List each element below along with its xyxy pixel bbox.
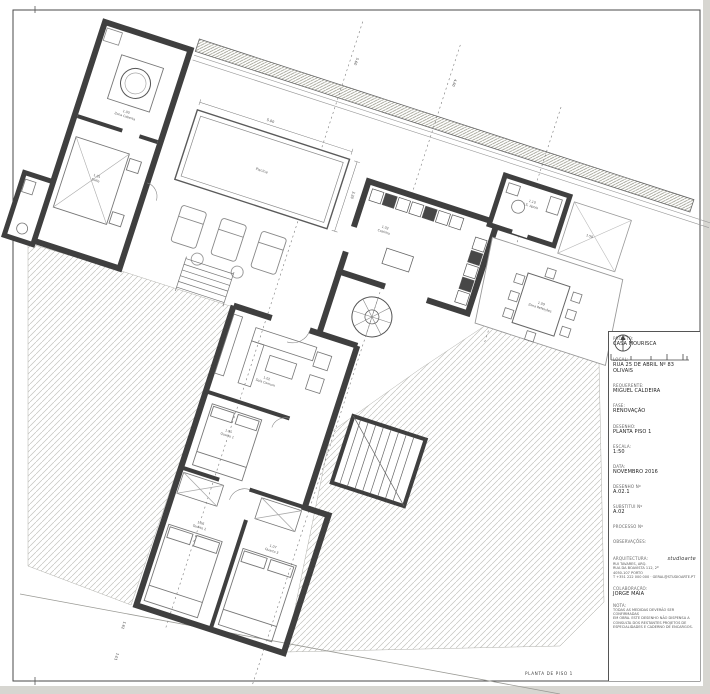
field-substitui: SUBSTITUI Nº A.02 [613, 504, 696, 515]
q3-label: Quarto 3 [264, 547, 279, 555]
outbuilding-bathroom [489, 175, 570, 246]
kitchen-block [334, 180, 497, 317]
nota-line: TODAS AS MEDIDAS DEVERÃO SER CONFIRMADAS [613, 608, 696, 617]
field-arquitectura: ARQUITECTURA: studioarte RUI TAVARES, AR… [613, 556, 696, 580]
q1-label: Quarto 1 [220, 431, 235, 439]
field-data: DATA: NOVEMBRO 2016 [613, 464, 696, 475]
dim-label: 5.00 [266, 118, 275, 124]
dim-label: 4.60 [451, 79, 457, 88]
field-value: NOVEMBRO 2016 [613, 469, 696, 475]
spiral-stair [347, 292, 397, 342]
dim-label: 5.60 [353, 57, 359, 66]
field-label: PROCESSO Nº [613, 524, 696, 529]
field-fase: FASE: RENOVAÇÃO [613, 403, 696, 414]
titleblock-header-graphics [609, 332, 693, 364]
field-colaboracao: COLABORAÇÃO: JORGE MAIA [613, 586, 696, 597]
field-desenho: DESENHO: PLANTA PISO 1 [613, 424, 696, 435]
field-value: OLIVAIS [613, 368, 696, 374]
field-observacoes: OBSERVAÇÕES: [613, 539, 696, 544]
terrain-hatch-right [286, 325, 604, 652]
title-block: PROJETO: CASA MOURISCA LOCAL: RUA 25 DE … [608, 331, 700, 681]
studio-logo: studioarte [667, 556, 696, 562]
field-label: OBSERVAÇÕES: [613, 539, 696, 544]
living-room-furniture [214, 314, 335, 408]
nota-line: EM OBRA. ESTE DESENHO NÃO DISPENSA A [613, 616, 696, 620]
field-nota: NOTA: TODAS AS MEDIDAS DEVERÃO SER CONFI… [613, 603, 696, 630]
field-value: 1:50 [613, 449, 696, 455]
nota-line: ESPECIALIDADES E CADERNO DE ENCARGOS. [613, 625, 696, 629]
bedroom1-bed [192, 404, 261, 481]
dim-label: 1.62 [120, 621, 126, 630]
north-arrow-icon [615, 335, 631, 351]
graphic-scale-bar [611, 354, 689, 360]
q2-label: Quarto 2 [192, 523, 207, 531]
field-value: RENOVAÇÃO [613, 408, 696, 414]
field-value: MIGUEL CALDEIRA [613, 388, 696, 394]
sheet-bottom-label: PLANTA DE PISO 1 [525, 671, 573, 676]
terrain-hatch-left [28, 243, 233, 605]
floor-plan-drawing: 5.60 4.60 5.00 3.20 1.50 1.62 1.01 Pisci… [0, 0, 710, 694]
field-processo: PROCESSO Nº [613, 524, 696, 529]
field-escala: ESCALA: 1:50 [613, 444, 696, 455]
suite-block [4, 13, 190, 273]
field-requerente: REQUERENTE: MIGUEL CALDEIRA [613, 383, 696, 394]
field-label: ARQUITECTURA: [613, 556, 648, 561]
dim-label: 3.20 [350, 191, 356, 200]
field-value: JORGE MAIA [613, 591, 696, 597]
field-desenho-no: DESENHO Nº A.02.1 [613, 484, 696, 495]
field-value: A.02.1 [613, 489, 696, 495]
drawing-sheet: 5.60 4.60 5.00 3.20 1.50 1.62 1.01 Pisci… [0, 0, 710, 694]
dim-label: 1.01 [113, 652, 119, 661]
field-value: A.02 [613, 509, 696, 515]
field-value: PLANTA PISO 1 [613, 429, 696, 435]
outbuilding-deck [558, 202, 632, 272]
architect-line: T +351 222 000 000 · GERAL@STUDIOARTE.PT [613, 575, 696, 579]
bedroom3-bed [218, 548, 296, 641]
